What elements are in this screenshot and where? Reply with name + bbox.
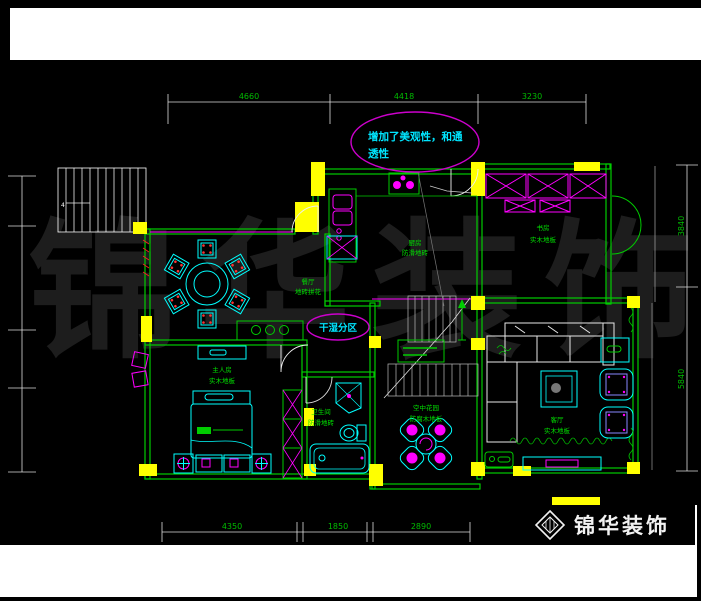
sideboard <box>237 321 303 340</box>
dresser <box>198 346 246 359</box>
room-label-master-floor: 实木地板 <box>209 376 236 385</box>
room-label-living-floor: 实木地板 <box>544 426 571 435</box>
staircase-top-left <box>58 168 146 232</box>
tea-table <box>416 434 436 454</box>
top-margin-band <box>10 8 701 60</box>
dim-top-2: 4418 <box>394 92 414 101</box>
room-label-master-name: 主人房 <box>212 365 232 374</box>
room-label-kitchen-name: 厨房 <box>409 238 422 247</box>
central-stairs <box>384 296 478 398</box>
zone-ellipse: 干湿分区 <box>307 314 369 340</box>
room-label-kitchen-floor: 防滑地砖 <box>402 248 429 257</box>
armchair <box>600 407 633 438</box>
room-label-garden-name: 空中花园 <box>413 403 439 412</box>
room-label-bath-floor: 防滑地砖 <box>308 418 335 427</box>
dining-chairs <box>164 240 249 328</box>
note-leader-line <box>418 172 444 306</box>
room-label-dining-floor: 地砖拼花 <box>295 287 322 296</box>
room-label-study-name: 书房 <box>537 223 550 232</box>
room-label-dining-name: 餐厅 <box>302 277 316 286</box>
cad-floorplan-canvas: 锦华装饰 4660 4418 3230 <box>0 0 701 601</box>
living-furniture <box>485 308 633 470</box>
shower <box>336 383 361 413</box>
dim-right-2: 5840 <box>677 369 686 389</box>
bed-size-tag <box>197 427 211 434</box>
bottom-margin-band <box>0 545 695 597</box>
room-label-study-floor: 实木地板 <box>530 235 557 244</box>
zone-label-text: 干湿分区 <box>319 322 358 334</box>
room-label-garden-floor: 防腐木地板 <box>410 414 443 423</box>
stair-landing-box <box>398 340 444 362</box>
skygarden-furniture <box>398 416 454 472</box>
room-labels: 餐厅 地砖拼花 厨房 防滑地砖 书房 实木地板 主人房 实木地板 卫生间 防滑地… <box>209 223 571 435</box>
room-label-living-name: 客厅 <box>551 415 565 424</box>
bathroom-door-arc <box>306 377 332 403</box>
plants-row <box>510 438 612 444</box>
brand-logo: 锦华装饰 <box>528 505 693 545</box>
toilet-bowl <box>340 425 358 441</box>
dim-bottom-1: 4350 <box>222 522 242 531</box>
wall-hatch <box>143 240 149 276</box>
note-text-line1: 增加了美观性，和通 <box>368 130 463 143</box>
armchair <box>600 369 633 400</box>
dim-bottom-3: 2890 <box>411 522 431 531</box>
nightstand <box>252 454 271 473</box>
brand-logo-text: 锦华装饰 <box>574 510 670 540</box>
outdoor-unit <box>132 352 149 387</box>
dim-top-3: 3230 <box>522 92 542 101</box>
dining-furniture <box>143 240 303 340</box>
plant <box>497 346 511 355</box>
dimension-right <box>676 165 698 471</box>
stair-step-number: 4 <box>61 202 65 209</box>
dim-top-1: 4660 <box>239 92 259 101</box>
nightstand <box>174 454 193 473</box>
study-double-door-arcs <box>612 196 641 254</box>
note-ellipse: 增加了美观性，和通 透性 <box>351 112 479 172</box>
sink-basin <box>333 211 352 225</box>
bathroom-fixtures <box>310 383 369 473</box>
sink-basin <box>333 195 352 209</box>
diamond-cube-icon <box>534 509 566 541</box>
sofa <box>487 323 614 442</box>
room-label-bath-name: 卫生间 <box>311 407 331 416</box>
note-text-line2: 透性 <box>368 147 389 160</box>
right-edge-line <box>695 505 697 597</box>
wardrobe <box>283 390 302 478</box>
bedroom-door-arc <box>281 345 308 372</box>
doors <box>281 169 641 403</box>
study-wardrobes <box>486 174 606 212</box>
dimension-left <box>8 176 36 472</box>
dim-right-1: 3840 <box>677 216 686 236</box>
headboard <box>193 391 250 404</box>
tv <box>546 460 578 467</box>
side-table <box>601 338 629 362</box>
dim-bottom-2: 1850 <box>328 522 348 531</box>
